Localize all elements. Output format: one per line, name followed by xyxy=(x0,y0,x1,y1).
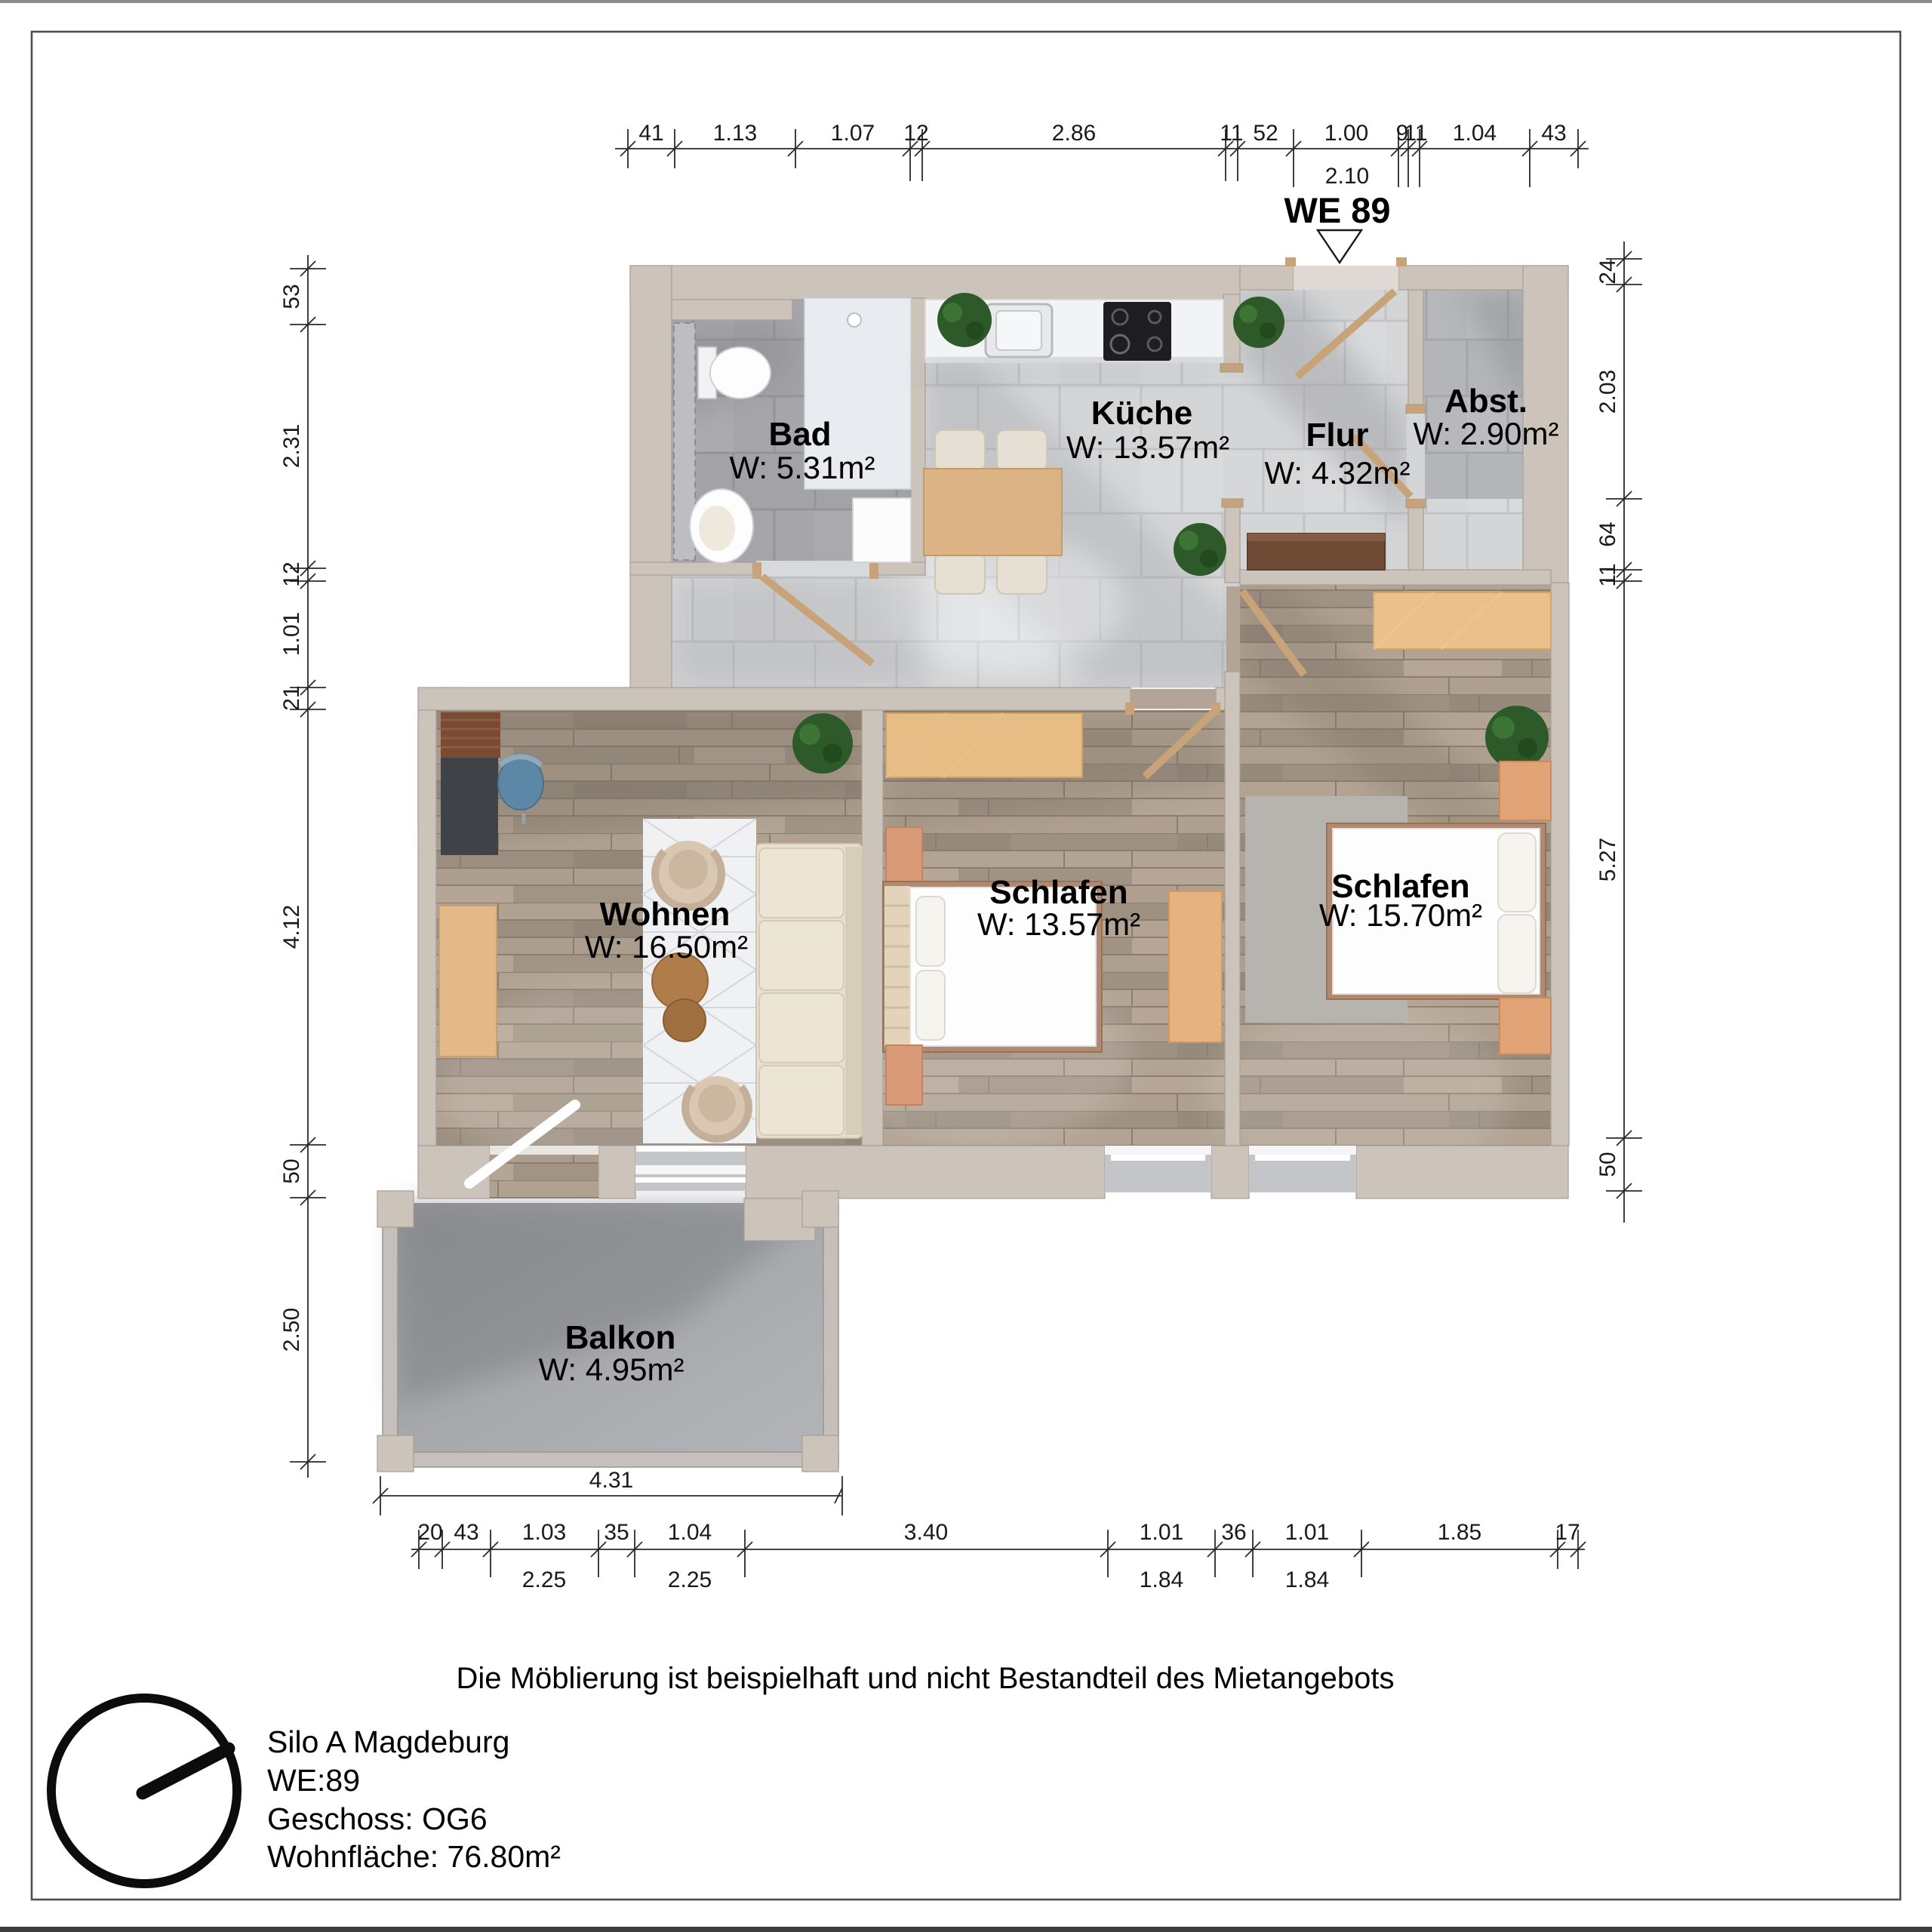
svg-text:Geschoss: OG6: Geschoss: OG6 xyxy=(267,1801,488,1836)
svg-text:64: 64 xyxy=(1595,521,1620,546)
svg-text:Küche: Küche xyxy=(1091,395,1192,432)
svg-text:2.10: 2.10 xyxy=(1325,164,1369,189)
svg-text:1.04: 1.04 xyxy=(1453,121,1497,146)
svg-text:W: 2.90m²: W: 2.90m² xyxy=(1414,416,1559,451)
svg-text:Schlafen: Schlafen xyxy=(989,874,1128,911)
svg-text:1.04: 1.04 xyxy=(668,1520,712,1545)
svg-text:21: 21 xyxy=(279,685,304,710)
svg-text:50: 50 xyxy=(1595,1152,1620,1177)
svg-text:WE 89: WE 89 xyxy=(1284,190,1390,230)
svg-text:36: 36 xyxy=(1221,1520,1246,1545)
svg-text:Wohnfläche: 76.80m²: Wohnfläche: 76.80m² xyxy=(267,1839,561,1874)
svg-text:Wohnen: Wohnen xyxy=(600,896,731,933)
svg-text:53: 53 xyxy=(279,284,304,309)
svg-text:1.00: 1.00 xyxy=(1324,121,1368,146)
svg-text:43: 43 xyxy=(454,1520,478,1545)
svg-text:11: 11 xyxy=(1404,121,1427,146)
svg-text:4.31: 4.31 xyxy=(589,1468,633,1493)
svg-text:2.86: 2.86 xyxy=(1052,121,1096,146)
svg-text:2.50: 2.50 xyxy=(279,1308,304,1352)
svg-text:1.13: 1.13 xyxy=(713,121,757,146)
svg-text:1.07: 1.07 xyxy=(831,121,875,146)
svg-text:Bad: Bad xyxy=(768,416,831,453)
svg-text:Abst.: Abst. xyxy=(1444,383,1527,420)
svg-text:12: 12 xyxy=(279,561,304,586)
svg-text:2.25: 2.25 xyxy=(522,1567,566,1592)
svg-text:24: 24 xyxy=(1595,259,1620,284)
svg-text:W: 5.31m²: W: 5.31m² xyxy=(730,450,875,485)
svg-text:Silo A Magdeburg: Silo A Magdeburg xyxy=(267,1724,509,1759)
svg-text:4.12: 4.12 xyxy=(279,905,304,949)
svg-text:2.03: 2.03 xyxy=(1595,370,1620,414)
svg-text:1.84: 1.84 xyxy=(1285,1567,1329,1592)
svg-text:Die Möblierung ist beispielhaf: Die Möblierung ist beispielhaft und nich… xyxy=(457,1662,1395,1695)
svg-text:11: 11 xyxy=(1220,121,1243,146)
svg-text:11: 11 xyxy=(1595,563,1620,586)
svg-text:1.85: 1.85 xyxy=(1438,1520,1481,1545)
svg-text:W: 13.57m²: W: 13.57m² xyxy=(1066,429,1229,465)
svg-text:W: 4.32m²: W: 4.32m² xyxy=(1265,455,1411,491)
svg-text:52: 52 xyxy=(1253,121,1278,146)
svg-text:5.27: 5.27 xyxy=(1595,838,1620,881)
svg-text:Flur: Flur xyxy=(1306,417,1368,454)
svg-text:1.01: 1.01 xyxy=(1285,1520,1329,1545)
svg-text:3.40: 3.40 xyxy=(904,1520,948,1545)
svg-text:W: 15.70m²: W: 15.70m² xyxy=(1319,897,1482,933)
svg-text:35: 35 xyxy=(604,1520,629,1545)
svg-text:20: 20 xyxy=(417,1520,442,1545)
svg-text:1.01: 1.01 xyxy=(279,612,304,656)
svg-text:2.25: 2.25 xyxy=(668,1567,712,1592)
svg-text:W: 13.57m²: W: 13.57m² xyxy=(977,906,1140,942)
svg-text:12: 12 xyxy=(903,121,928,146)
svg-text:Balkon: Balkon xyxy=(565,1319,676,1356)
svg-text:W: 4.95m²: W: 4.95m² xyxy=(539,1352,685,1387)
svg-text:WE:89: WE:89 xyxy=(267,1763,360,1798)
svg-text:50: 50 xyxy=(279,1158,304,1183)
svg-text:W: 16.50m²: W: 16.50m² xyxy=(585,929,748,964)
svg-text:43: 43 xyxy=(1541,121,1566,146)
svg-text:1.03: 1.03 xyxy=(522,1520,566,1545)
svg-text:1.84: 1.84 xyxy=(1140,1567,1183,1592)
svg-text:41: 41 xyxy=(638,121,663,146)
svg-text:1.01: 1.01 xyxy=(1140,1520,1183,1545)
svg-text:2.31: 2.31 xyxy=(279,424,304,468)
svg-text:17: 17 xyxy=(1555,1520,1580,1545)
